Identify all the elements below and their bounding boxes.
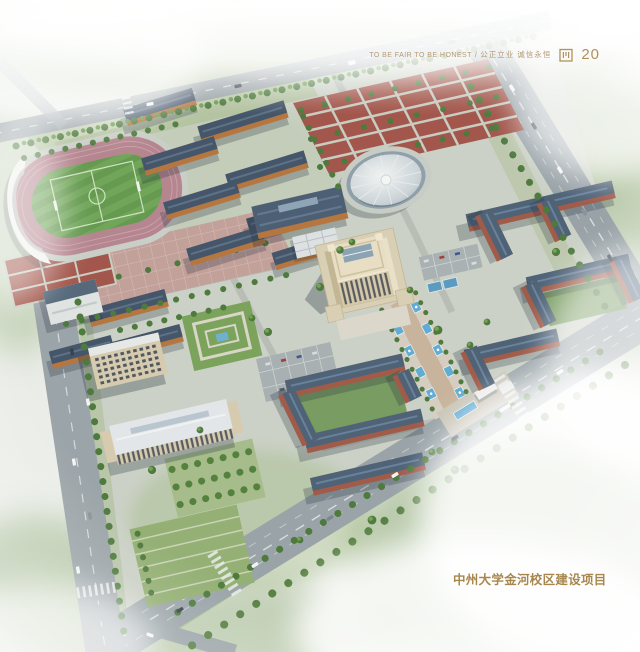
header-slogan-en: TO BE FAIR TO BE HONEST bbox=[369, 52, 472, 59]
header-slogan-cn: 公正立业 诚信永恒 bbox=[480, 49, 551, 60]
project-title: 中州大学金河校区建设项目 bbox=[453, 569, 607, 588]
company-logo-icon bbox=[558, 47, 574, 63]
campus-aerial-rendering bbox=[0, 0, 640, 652]
header-slogan: TO BE FAIR TO BE HONEST / 公正立业 诚信永恒 bbox=[369, 49, 551, 60]
page-header: TO BE FAIR TO BE HONEST / 公正立业 诚信永恒 20 bbox=[369, 46, 600, 63]
header-slogan-divider: / bbox=[475, 52, 477, 59]
page-number: 20 bbox=[581, 46, 600, 63]
fog-overlay bbox=[0, 0, 640, 652]
brochure-page: TO BE FAIR TO BE HONEST / 公正立业 诚信永恒 20 中… bbox=[0, 0, 640, 652]
vignette bbox=[0, 0, 640, 652]
